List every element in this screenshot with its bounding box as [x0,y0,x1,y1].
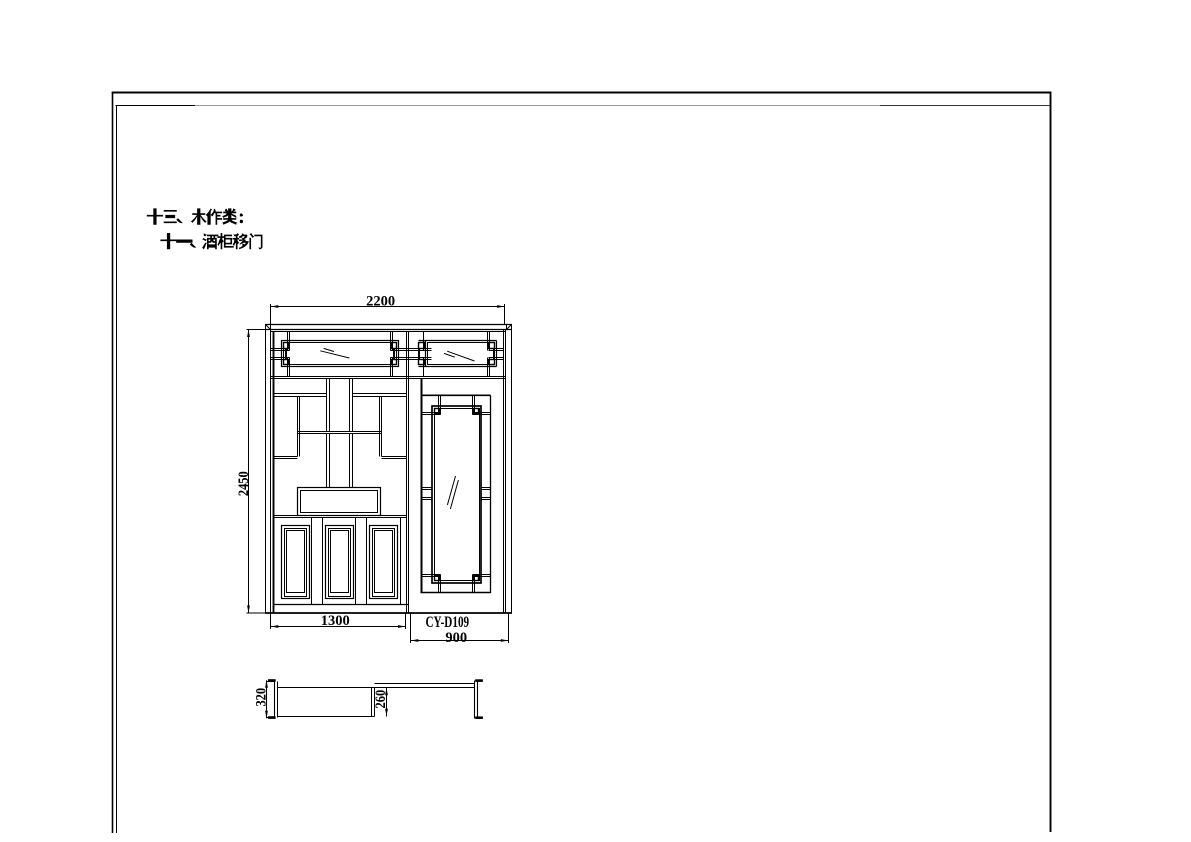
svg-text:2200: 2200 [366,293,395,309]
svg-text:260: 260 [372,690,388,709]
svg-text:1300: 1300 [321,613,350,629]
svg-text:CY-D109: CY-D109 [425,613,469,630]
svg-text:320: 320 [253,688,269,707]
svg-text:2450: 2450 [235,471,251,496]
svg-text:900: 900 [445,630,467,646]
